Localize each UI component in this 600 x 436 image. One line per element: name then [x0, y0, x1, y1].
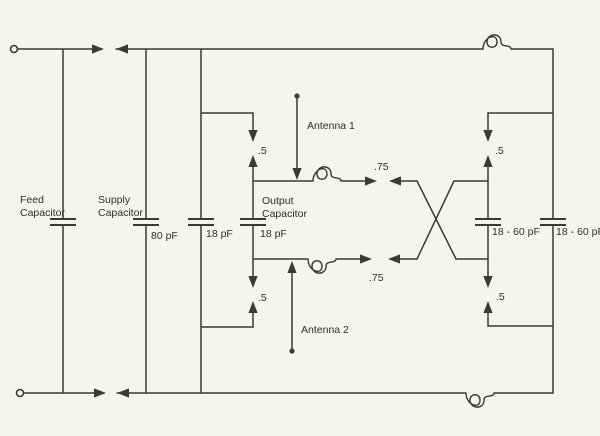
antenna2-label: Antenna 2	[301, 324, 349, 336]
up-arrow	[483, 301, 492, 313]
output-capacitor-value: 18 pF	[260, 228, 287, 240]
supply-capacitor: Supply Capacitor 80 pF	[98, 49, 178, 393]
capacitor-18pf-value: 18 pF	[206, 228, 233, 240]
left-arrow	[388, 254, 400, 263]
bottom-coupling-line: .75	[253, 254, 384, 284]
antenna2-coupling-coil	[308, 259, 336, 273]
left-link-top: .5	[201, 113, 267, 219]
down-arrow	[248, 276, 257, 288]
link-top-right-value: .5	[495, 145, 504, 157]
bottom-rail	[17, 388, 554, 407]
output-capacitor-label-line1: Output	[262, 195, 294, 207]
circuit-schematic: Feed Capacitor Supply Capacitor 80 pF 18…	[0, 0, 600, 436]
left-link-bottom: .5	[201, 292, 267, 327]
antenna1-coupling-coil	[313, 167, 341, 181]
supply-capacitor-value: 80 pF	[151, 230, 178, 242]
up-arrow	[248, 155, 257, 167]
right-link-top: .5	[483, 113, 553, 219]
bottom-rail-right-arrow	[94, 388, 106, 397]
top-input-terminal	[11, 46, 18, 53]
bottom-input-terminal	[17, 390, 24, 397]
link-bottom-right-value: .5	[496, 291, 505, 303]
down-arrow	[483, 130, 492, 142]
bottom-rail-inductor	[466, 393, 494, 407]
feed-capacitor-label-line1: Feed	[20, 194, 44, 206]
antenna1-label: Antenna 1	[307, 120, 355, 132]
coupling-bottom-value: .75	[369, 272, 384, 284]
variable-capacitor-1: 18 - 60 pF	[475, 219, 540, 288]
link-top-left-value: .5	[258, 145, 267, 157]
link-bottom-left-value: .5	[258, 292, 267, 304]
right-link-bottom: .5	[483, 291, 553, 326]
antenna2: Antenna 2	[287, 261, 349, 354]
right-arrow	[360, 254, 372, 263]
feed-capacitor: Feed Capacitor	[20, 49, 76, 393]
left-arrow	[389, 176, 401, 185]
down-arrow	[248, 130, 257, 142]
supply-capacitor-label-line1: Supply	[98, 194, 131, 206]
antenna2-up-arrow	[287, 261, 296, 273]
supply-capacitor-label-line2: Capacitor	[98, 207, 143, 219]
up-arrow	[483, 155, 492, 167]
right-arrow	[365, 176, 377, 185]
crossover-wires	[388, 176, 488, 263]
coupling-top-value: .75	[374, 161, 389, 173]
variable-capacitor-1-value: 18 - 60 pF	[492, 226, 540, 238]
up-arrow	[248, 301, 257, 313]
down-arrow	[483, 276, 492, 288]
antenna1-down-arrow	[292, 168, 301, 180]
output-capacitor: Output Capacitor 18 pF	[240, 195, 307, 288]
top-coupling-line: .75	[253, 161, 389, 186]
output-capacitor-label-line2: Capacitor	[262, 208, 307, 220]
feed-capacitor-label-line2: Capacitor	[20, 207, 65, 219]
antenna2-terminal-dot	[289, 348, 294, 353]
variable-capacitor-2-value: 18 - 60 pF	[556, 226, 600, 238]
variable-capacitor-2: 18 - 60 pF	[540, 219, 600, 238]
top-rail-right-arrow	[92, 44, 104, 53]
top-rail	[11, 35, 554, 54]
capacitor-18pf: 18 pF	[188, 49, 233, 393]
top-rail-inductor	[483, 35, 511, 49]
